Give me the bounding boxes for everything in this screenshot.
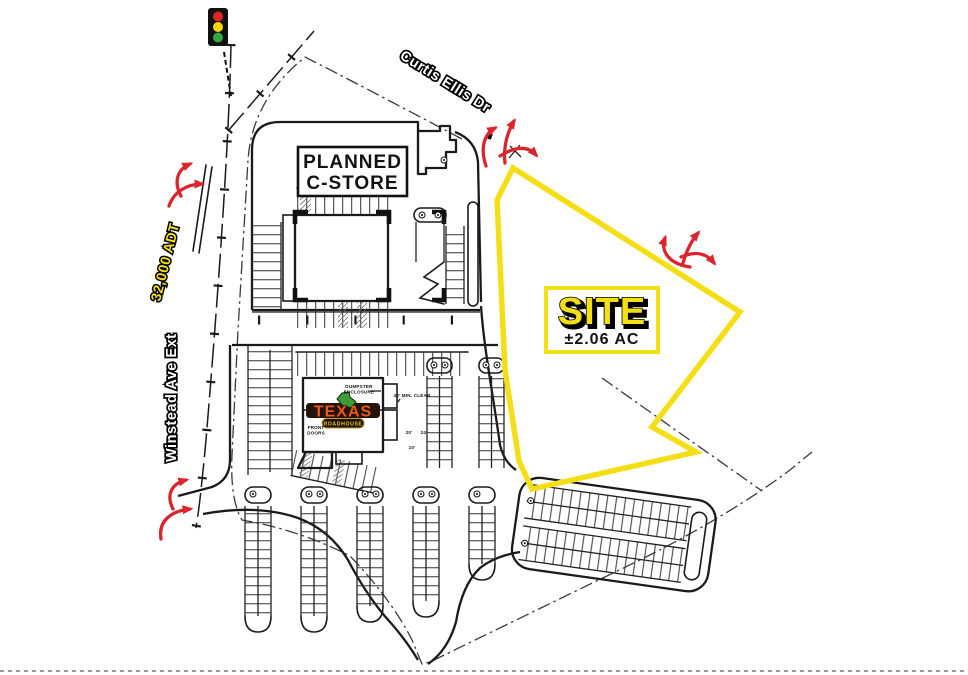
curb-brackets — [295, 212, 444, 300]
site-title: SITE — [558, 291, 646, 333]
dim-24: 24' — [421, 430, 428, 435]
street-label-winstead: Winstead Ave Ext — [164, 334, 180, 462]
turn-arrow — [169, 184, 202, 206]
texas-roadhouse-logo: TEXAS ROADHOUSE — [304, 392, 382, 428]
cstore-label-line2: C-STORE — [306, 173, 398, 194]
planned-cstore-footprint — [418, 122, 456, 174]
traffic-count-label: 32,000 ADT — [147, 221, 182, 302]
signal-amber-light — [213, 22, 223, 32]
logo-roadhouse-text: ROADHOUSE — [323, 422, 362, 428]
dim-10: 10' — [409, 445, 416, 450]
drive-median — [468, 202, 478, 306]
logo-texas-text: TEXAS — [314, 404, 372, 421]
roadhouse-lot — [178, 306, 718, 664]
planned-cstore-label: PLANNED C-STORE — [298, 147, 407, 196]
front-doors-label-line2: DOORS — [307, 431, 325, 436]
dumpster-label-line1: DUMPSTER — [345, 384, 373, 389]
parking-bay — [479, 358, 504, 468]
southeast-parking-rows — [509, 475, 718, 594]
median-strip — [193, 165, 212, 253]
front-doors-label-line1: FRONT — [308, 425, 325, 430]
boundary-branch-line — [602, 378, 762, 491]
site-label-box: SITE SITE ±2.06 AC — [546, 288, 658, 352]
turn-arrow — [683, 233, 698, 263]
turn-arrow — [483, 128, 495, 166]
street-label-curtis-ellis: Curtis Ellis Dr — [397, 48, 493, 116]
site-area: ±2.06 AC — [565, 331, 640, 348]
fuel-canopy — [295, 215, 388, 301]
dim-20: 20' — [406, 430, 413, 435]
turn-arrow — [161, 509, 190, 539]
signal-red-light — [213, 12, 223, 22]
site-plan-drawing: TEXAS ROADHOUSE DUMPSTER ENCLOSURE FRONT… — [0, 0, 968, 675]
cstore-label-line1: PLANNED — [303, 152, 402, 173]
winstead-ave-road — [193, 44, 231, 528]
clear-dim-label: 40' MIN. CLEAR — [393, 393, 431, 398]
site-plan: TEXAS ROADHOUSE DUMPSTER ENCLOSURE FRONT… — [0, 0, 968, 675]
light-pole — [441, 157, 447, 163]
roadhouse-building: TEXAS ROADHOUSE DUMPSTER ENCLOSURE FRONT… — [298, 378, 431, 468]
signal-green-light — [213, 33, 223, 43]
dumpster-label-line2: ENCLOSURE — [344, 390, 375, 395]
traffic-light-icon — [208, 8, 231, 96]
